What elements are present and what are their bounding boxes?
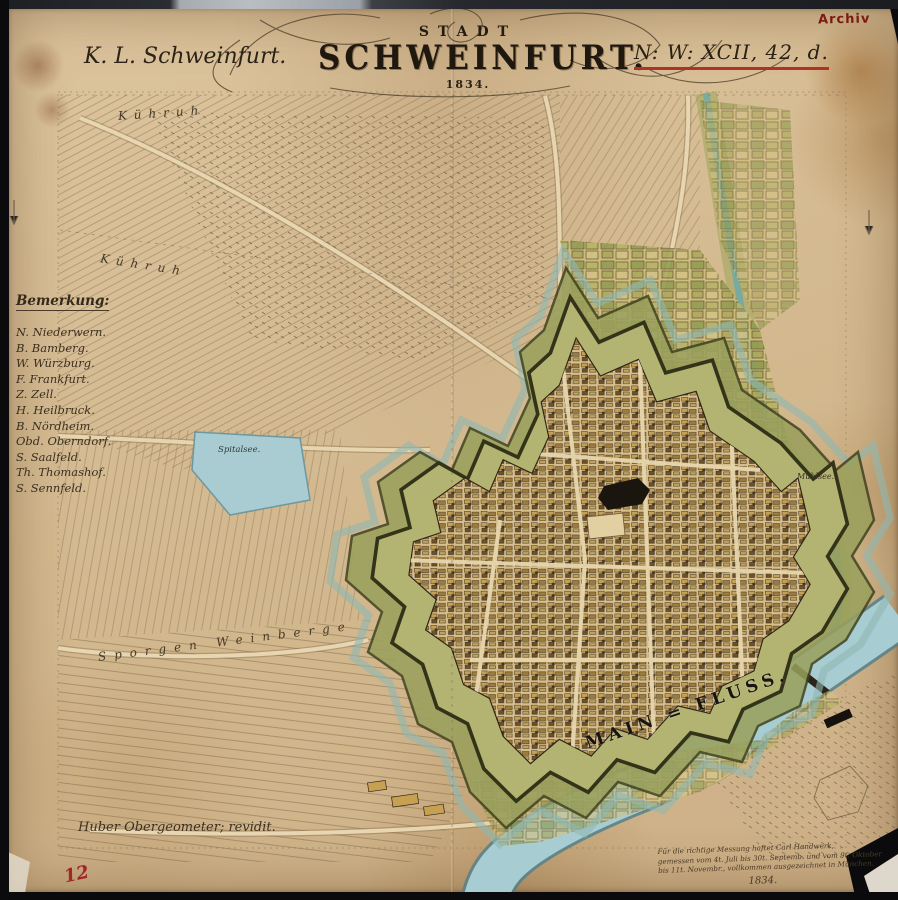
pond-label: Spitalsee. [218, 445, 260, 455]
list-item: B. Bamberg. [16, 341, 136, 357]
list-item: W. Würzburg. [16, 356, 136, 372]
legend-entries: N. Niederwern.B. Bamberg.W. Würzburg.F. … [16, 325, 136, 497]
revision-note: Huber Obergeometer; revidit. [78, 820, 276, 835]
list-item: N. Niederwern. [16, 325, 136, 341]
title-year: 1834. [318, 78, 618, 91]
catalog-reference: N: W: XCII, 42, d. [634, 40, 829, 70]
survey-note: Für die richtige Messung haftet Carl Han… [657, 839, 888, 890]
list-item: F. Frankfurt. [16, 372, 136, 388]
legend-heading: Bemerkung: [16, 293, 109, 311]
archive-stamp: Archiv [818, 12, 871, 28]
legend: Bemerkung: N. Niederwern.B. Bamberg.W. W… [16, 290, 136, 497]
region-label: K. L. Schweinfurt. [84, 44, 286, 69]
list-item: Z. Zell. [16, 387, 136, 403]
list-item: H. Heilbruck. [16, 403, 136, 419]
list-item: S. Sennfeld. [16, 481, 136, 497]
bottom-left-tear [8, 852, 30, 900]
map-scan: K. L. Schweinfurt. STADT SCHWEINFURT. 18… [0, 0, 898, 900]
mill-pond-label: Mühlsee. [797, 472, 834, 481]
photo-backdrop-top [0, 0, 898, 9]
top-right-corner [890, 8, 898, 44]
title-cartouche: STADT SCHWEINFURT. 1834. [318, 24, 618, 91]
list-item: Th. Thomashof. [16, 465, 136, 481]
market-square [587, 513, 625, 539]
photo-backdrop-left [0, 0, 9, 900]
map-title: SCHWEINFURT. [318, 39, 618, 78]
list-item: B. Nördheim. [16, 419, 136, 435]
list-item: Obd. Oberndorf. [16, 434, 136, 450]
list-item: S. Saalfeld. [16, 450, 136, 466]
